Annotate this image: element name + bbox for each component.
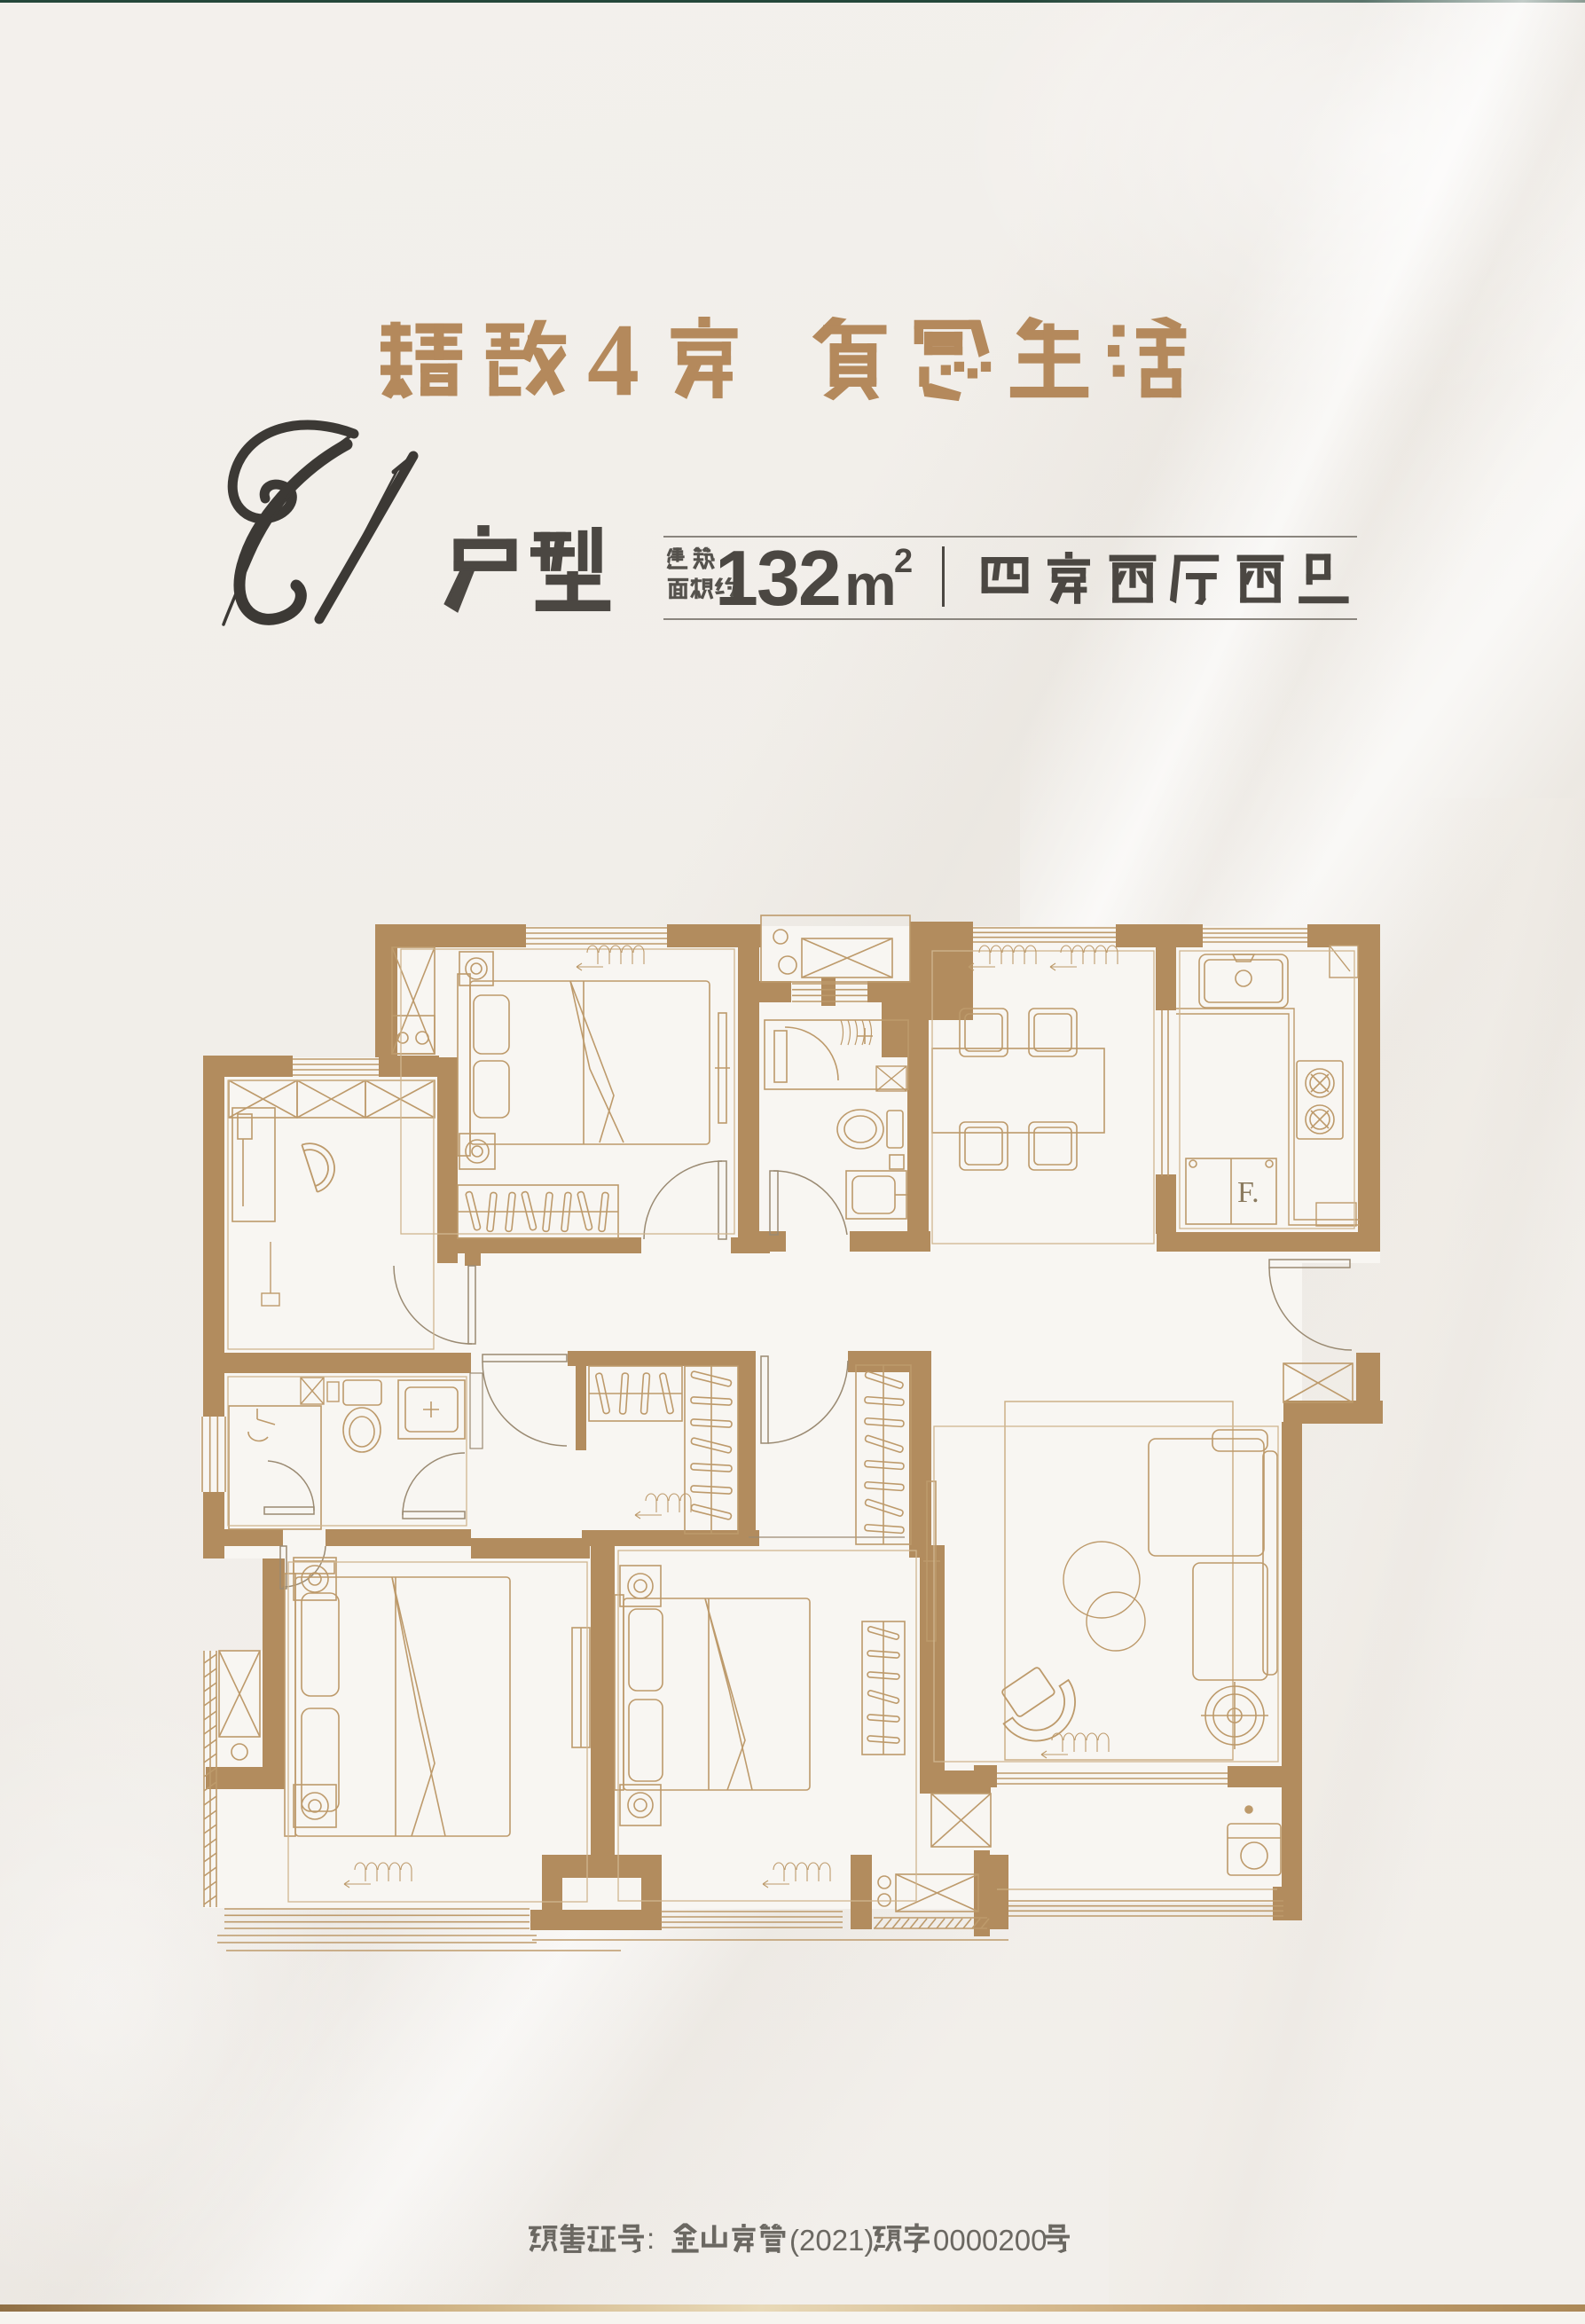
svg-text::: : xyxy=(647,2222,655,2255)
svg-text:0000200: 0000200 xyxy=(933,2224,1047,2257)
svg-text:(2021): (2021) xyxy=(789,2224,874,2257)
svg-text:F.: F. xyxy=(1237,1176,1259,1209)
svg-text:m: m xyxy=(844,552,897,617)
svg-text:4: 4 xyxy=(587,302,639,418)
svg-text:132: 132 xyxy=(715,534,840,622)
svg-text:2: 2 xyxy=(894,543,913,580)
